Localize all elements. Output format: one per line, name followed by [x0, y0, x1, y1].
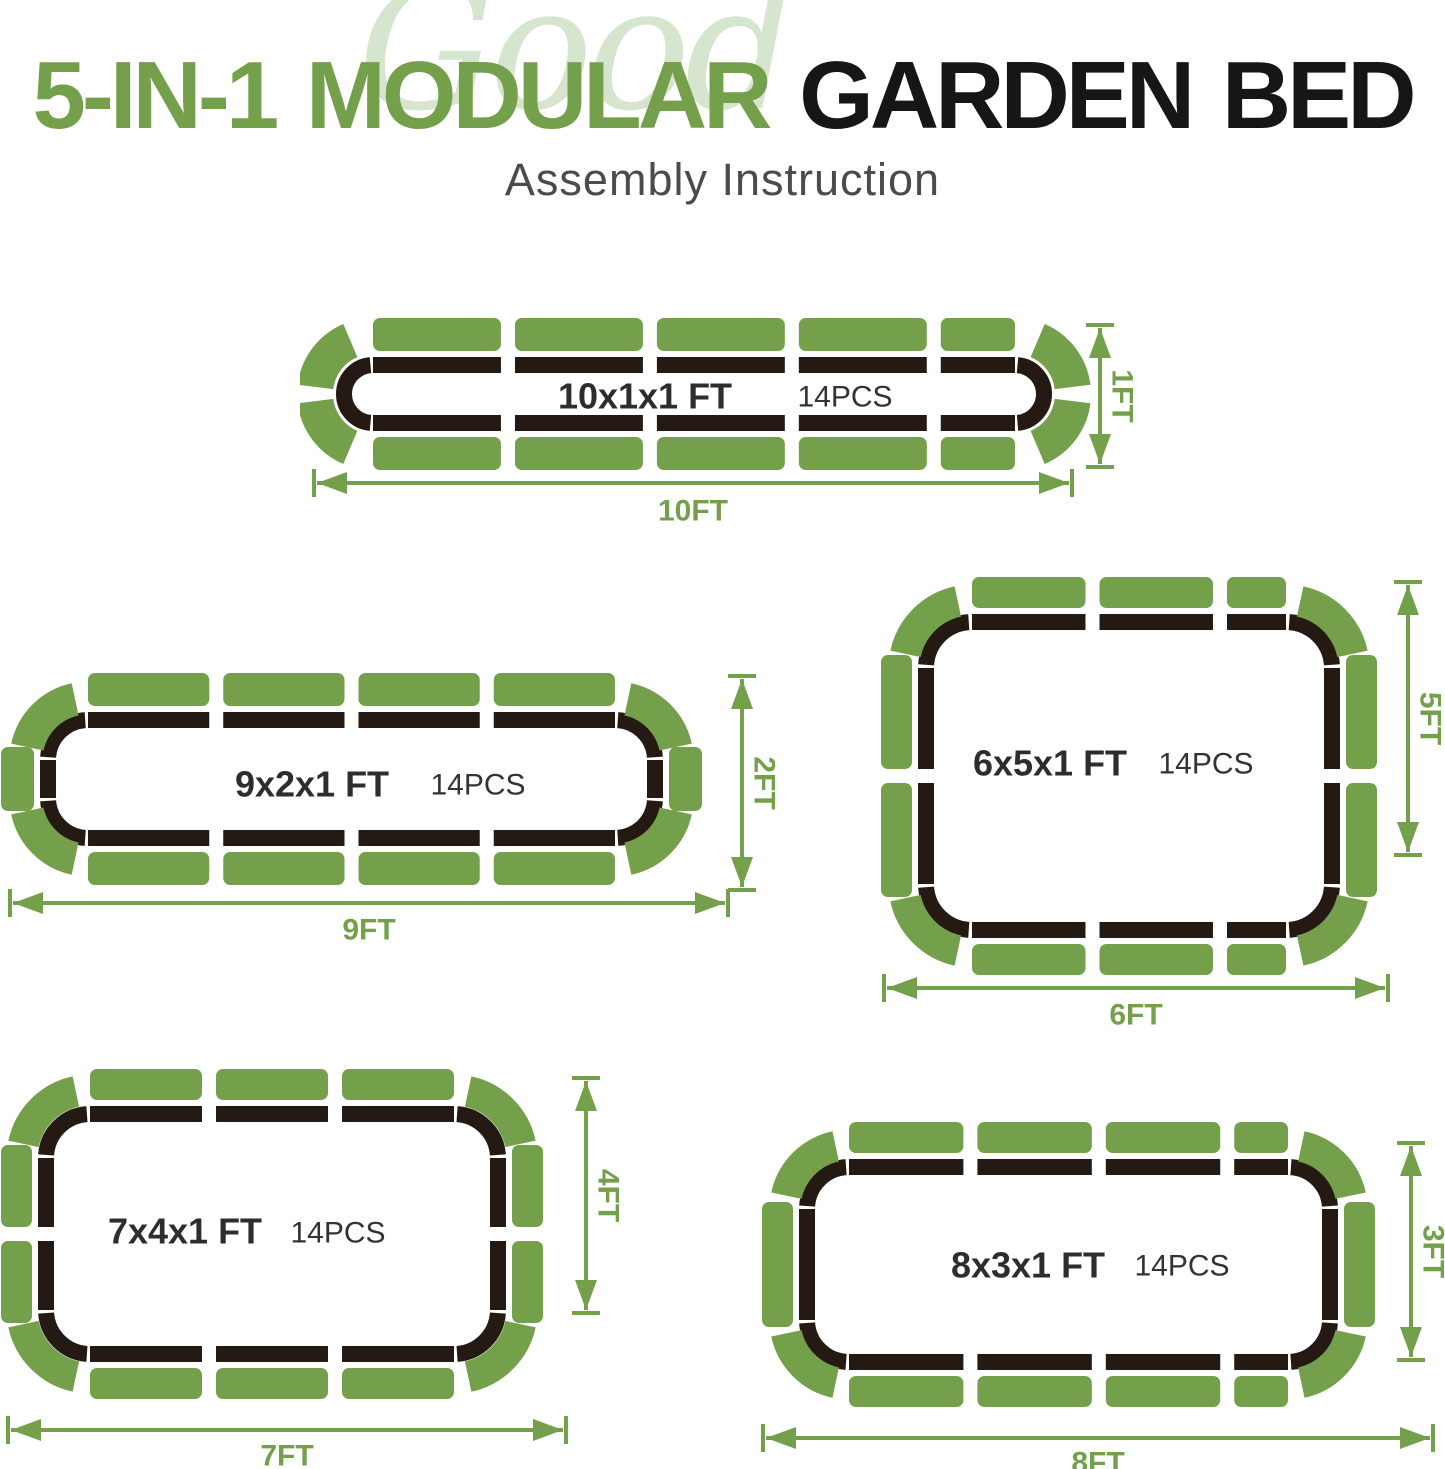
bed-wall-right-end-arc — [1018, 365, 1044, 423]
panel-piece-top — [88, 673, 209, 706]
diagram-bed-10x1x1-ft: 10x1x1 FT14PCS10FT1FT — [300, 315, 1140, 532]
dimension-arrowhead-left — [766, 1427, 796, 1449]
panel-piece-left — [762, 1202, 793, 1327]
panel-piece-bottom — [223, 852, 344, 885]
panel-piece-bottom — [342, 1368, 454, 1399]
dimension-arrowhead-right — [1400, 1427, 1430, 1449]
panel-piece-bottom — [216, 1368, 328, 1399]
panel-piece-bottom — [799, 437, 927, 470]
bed-size-label: 10x1x1 FT — [558, 376, 732, 417]
width-dimension-label: 7FT — [260, 1440, 313, 1469]
height-dimension-label: 2FT — [748, 756, 781, 809]
dimension-arrowhead-left — [11, 1419, 41, 1441]
panel-piece-bottom — [977, 1376, 1091, 1407]
bed-wall-left-end-arc — [344, 365, 370, 423]
dimension-arrowhead-up — [1397, 585, 1419, 615]
panel-piece-bottom — [1106, 1376, 1220, 1407]
dimension-arrowhead-right — [1039, 472, 1069, 494]
bed-size-label: 7x4x1 FT — [108, 1211, 262, 1252]
panel-piece-top — [1234, 1122, 1288, 1153]
panel-piece-left — [1, 1145, 32, 1227]
panel-piece-left — [881, 655, 912, 769]
page-title: 5-IN-1 MODULAR GARDEN BED — [0, 0, 1445, 144]
bed-size-label: 9x2x1 FT — [235, 764, 389, 805]
panel-piece-left — [1, 1241, 32, 1323]
panel-piece-top — [359, 673, 480, 706]
panel-piece-top — [373, 318, 501, 351]
panel-piece-top — [849, 1122, 963, 1153]
panel-piece-bottom — [90, 1368, 202, 1399]
dimension-arrowhead-down — [575, 1280, 597, 1310]
dimension-arrowhead-left — [887, 977, 917, 999]
title-green-part: 5-IN-1 MODULAR — [32, 42, 768, 149]
panel-piece-bottom — [359, 852, 480, 885]
panel-piece-bottom — [88, 852, 209, 885]
panel-piece-bottom — [941, 437, 1015, 470]
dimension-arrowhead-down — [1397, 822, 1419, 852]
dimension-arrowhead-down — [1400, 1327, 1422, 1357]
dimension-arrowhead-down — [1089, 434, 1111, 464]
bed-assembly-svg-8x3x1-ft: 8x3x1 FT14PCS8FT3FT — [745, 1098, 1445, 1469]
panel-piece-top — [223, 673, 344, 706]
panel-piece-bottom — [849, 1376, 963, 1407]
panel-piece-bottom — [657, 437, 785, 470]
panel-piece-top — [90, 1069, 202, 1100]
dimension-arrowhead-left — [13, 892, 43, 914]
dimension-arrowhead-up — [1400, 1146, 1422, 1176]
height-dimension-label: 5FT — [1414, 692, 1445, 745]
height-dimension-label: 1FT — [1106, 369, 1139, 422]
bed-pcs-label: 14PCS — [1158, 748, 1253, 781]
width-dimension-label: 10FT — [658, 495, 728, 528]
panel-piece-top — [799, 318, 927, 351]
diagram-bed-8x3x1-ft: 8x3x1 FT14PCS8FT3FT — [745, 1098, 1445, 1469]
panel-piece-top — [977, 1122, 1091, 1153]
panel-piece-top — [941, 318, 1015, 351]
page-subtitle: Assembly Instruction — [0, 154, 1445, 206]
title-dark-part: GARDEN BED — [799, 42, 1412, 149]
bed-assembly-svg-6x5x1-ft: 6x5x1 FT14PCS6FT5FT — [858, 560, 1445, 1035]
bed-assembly-svg-9x2x1-ft: 9x2x1 FT14PCS9FT2FT — [0, 650, 785, 952]
panel-piece-top — [216, 1069, 328, 1100]
height-dimension-label: 3FT — [1417, 1225, 1445, 1278]
panel-piece-bottom — [1099, 944, 1212, 975]
panel-piece-right — [512, 1145, 543, 1227]
panel-piece-left — [881, 783, 912, 897]
panel-piece-bottom — [972, 944, 1085, 975]
panel-piece-right — [512, 1241, 543, 1323]
dimension-arrowhead-right — [533, 1419, 563, 1441]
bed-assembly-svg-10x1x1-ft: 10x1x1 FT14PCS10FT1FT — [300, 315, 1140, 527]
bed-pcs-label: 14PCS — [430, 769, 525, 802]
panel-piece-top — [1227, 577, 1286, 608]
diagram-bed-9x2x1-ft: 9x2x1 FT14PCS9FT2FT — [0, 650, 785, 957]
panel-piece-top — [494, 673, 615, 706]
bed-pcs-label: 14PCS — [1134, 1250, 1229, 1283]
panel-piece-left — [1, 747, 34, 811]
width-dimension-label: 8FT — [1071, 1447, 1124, 1469]
bed-assembly-svg-7x4x1-ft: 7x4x1 FT14PCS7FT4FT — [0, 1052, 650, 1469]
bed-pcs-label: 14PCS — [290, 1217, 385, 1250]
dimension-arrowhead-down — [731, 857, 753, 887]
panel-piece-top — [1099, 577, 1212, 608]
panel-piece-top — [657, 318, 785, 351]
header: Good 5-IN-1 MODULAR GARDEN BED Assembly … — [0, 0, 1445, 240]
panel-piece-bottom — [1234, 1376, 1288, 1407]
panel-piece-right — [1346, 783, 1377, 897]
dimension-arrowhead-up — [731, 679, 753, 709]
width-dimension-label: 6FT — [1109, 999, 1162, 1032]
dimension-arrowhead-up — [575, 1081, 597, 1111]
diagram-bed-7x4x1-ft: 7x4x1 FT14PCS7FT4FT — [0, 1052, 650, 1469]
height-dimension-label: 4FT — [592, 1169, 625, 1222]
panel-piece-bottom — [494, 852, 615, 885]
panel-piece-bottom — [515, 437, 643, 470]
panel-piece-right — [1344, 1202, 1375, 1327]
panel-piece-top — [515, 318, 643, 351]
width-dimension-label: 9FT — [342, 914, 395, 947]
dimension-arrowhead-up — [1089, 328, 1111, 358]
panel-piece-bottom — [373, 437, 501, 470]
assembly-instruction-page: Good 5-IN-1 MODULAR GARDEN BED Assembly … — [0, 0, 1445, 1469]
panel-piece-top — [972, 577, 1085, 608]
bed-size-label: 8x3x1 FT — [951, 1245, 1105, 1286]
diagram-bed-6x5x1-ft: 6x5x1 FT14PCS6FT5FT — [858, 560, 1445, 1040]
dimension-arrowhead-right — [695, 892, 725, 914]
dimension-arrowhead-right — [1355, 977, 1385, 999]
panel-piece-right — [669, 747, 702, 811]
dimension-arrowhead-left — [317, 472, 347, 494]
bed-size-label: 6x5x1 FT — [973, 743, 1127, 784]
panel-piece-top — [1106, 1122, 1220, 1153]
panel-piece-bottom — [1227, 944, 1286, 975]
panel-piece-right — [1346, 655, 1377, 769]
panel-piece-top — [342, 1069, 454, 1100]
bed-pcs-label: 14PCS — [797, 381, 892, 414]
